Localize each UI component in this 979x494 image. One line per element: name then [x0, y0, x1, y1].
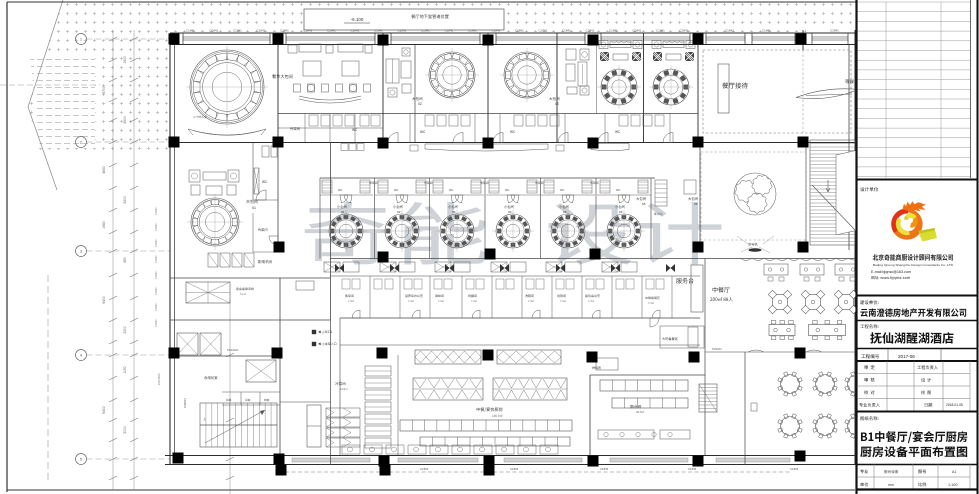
svg-text:C1841: C1841 — [539, 29, 548, 33]
svg-text:C1841: C1841 — [154, 271, 158, 279]
svg-text:1:100: 1:100 — [948, 483, 958, 487]
svg-text:C1833: C1833 — [688, 467, 697, 471]
svg-text:C1841: C1841 — [725, 29, 734, 33]
svg-text:C1841: C1841 — [445, 29, 454, 33]
svg-text:C1841: C1841 — [374, 29, 383, 33]
svg-text:mm: mm — [888, 483, 894, 487]
svg-text:C1833: C1833 — [600, 467, 609, 471]
svg-text:FM1824: FM1824 — [183, 398, 187, 408]
svg-text:1150: 1150 — [123, 366, 127, 373]
svg-text:1980: 1980 — [102, 221, 106, 229]
svg-text:C1841: C1841 — [762, 29, 771, 33]
svg-text:3300: 3300 — [123, 326, 127, 334]
svg-text:WC: WC — [394, 188, 398, 192]
svg-text:C1841: C1841 — [515, 29, 524, 33]
svg-text:A1: A1 — [952, 470, 956, 474]
svg-text:C1841: C1841 — [233, 29, 242, 33]
svg-text:C1841: C1841 — [492, 29, 501, 33]
svg-text:1500: 1500 — [123, 56, 127, 64]
svg-text:WC: WC — [352, 128, 358, 132]
svg-text:C1841: C1841 — [609, 29, 618, 33]
svg-text:C1841: C1841 — [154, 319, 158, 327]
svg-text:C1841: C1841 — [468, 29, 477, 33]
svg-text:C1841: C1841 — [327, 29, 336, 33]
svg-text:WC: WC — [449, 188, 453, 192]
svg-text:WC: WC — [420, 130, 426, 134]
svg-text:WC: WC — [262, 180, 268, 184]
svg-text:06: 06 — [619, 210, 623, 214]
svg-text:03: 03 — [452, 210, 456, 214]
svg-text:9400: 9400 — [102, 296, 106, 304]
svg-text:C1841: C1841 — [154, 255, 158, 263]
svg-text:5700: 5700 — [102, 86, 106, 94]
svg-text:C1841: C1841 — [633, 29, 642, 33]
svg-text:2018-01-05: 2018-01-05 — [946, 403, 963, 407]
svg-text:C1841: C1841 — [351, 29, 360, 33]
svg-text:C1841: C1841 — [154, 207, 158, 215]
svg-text:06: 06 — [694, 202, 698, 206]
svg-text:02: 02 — [418, 102, 422, 106]
svg-text:TM1202A: TM1202A — [227, 348, 239, 352]
svg-text:C1833: C1833 — [790, 467, 799, 471]
svg-text:C1841: C1841 — [656, 29, 665, 33]
svg-text:9400: 9400 — [102, 406, 106, 414]
svg-text:C1841: C1841 — [154, 303, 158, 311]
svg-text:01: 01 — [252, 206, 256, 210]
svg-text:2017-06: 2017-06 — [898, 354, 915, 359]
svg-text:WC: WC — [338, 188, 342, 192]
svg-text:05: 05 — [642, 202, 646, 206]
svg-text:3000: 3000 — [123, 426, 127, 434]
svg-text:01: 01 — [341, 210, 345, 214]
svg-text:05: 05 — [563, 210, 567, 214]
svg-text:C1841: C1841 — [154, 223, 158, 231]
svg-text:WC: WC — [510, 130, 516, 134]
svg-text:C1841: C1841 — [304, 29, 313, 33]
svg-text:WC: WC — [616, 188, 620, 192]
svg-text:C1841: C1841 — [280, 29, 289, 33]
svg-text:Beijing Qineng Shangchu Desig: Beijing Qineng Shangchu Design Consultan… — [873, 263, 954, 267]
svg-text:C1841: C1841 — [562, 29, 571, 33]
svg-text:03: 03 — [555, 102, 559, 106]
svg-text:C1841: C1841 — [186, 29, 195, 33]
svg-text:02: 02 — [397, 210, 401, 214]
svg-text:WC: WC — [505, 188, 509, 192]
svg-text:C1841: C1841 — [421, 29, 430, 33]
svg-text:4650: 4650 — [102, 166, 106, 174]
svg-text:04: 04 — [508, 210, 512, 214]
svg-text:WC: WC — [560, 188, 564, 192]
svg-text:FMC1824: FMC1824 — [157, 373, 161, 385]
svg-text:3300: 3300 — [123, 116, 127, 124]
svg-text:C1841: C1841 — [398, 29, 407, 33]
svg-text:C1841: C1841 — [830, 29, 839, 33]
svg-text:TM1202: TM1202 — [712, 347, 722, 351]
svg-text:WC: WC — [615, 130, 621, 134]
svg-text:C1841: C1841 — [586, 29, 595, 33]
svg-text:450: 450 — [123, 257, 127, 263]
svg-text:C1841: C1841 — [210, 29, 219, 33]
svg-text:E-mail:bjqnsc@163.com: E-mail:bjqnsc@163.com — [871, 270, 911, 274]
svg-text:C1841: C1841 — [154, 287, 158, 295]
svg-text:C1833: C1833 — [510, 467, 519, 471]
svg-text:C1841: C1841 — [257, 29, 266, 33]
svg-text:C1841: C1841 — [154, 239, 158, 247]
svg-text:3300: 3300 — [123, 196, 127, 204]
svg-text:C1841: C1841 — [680, 29, 689, 33]
svg-text:-6.100: -6.100 — [351, 17, 364, 22]
svg-text:C1833: C1833 — [420, 467, 429, 471]
